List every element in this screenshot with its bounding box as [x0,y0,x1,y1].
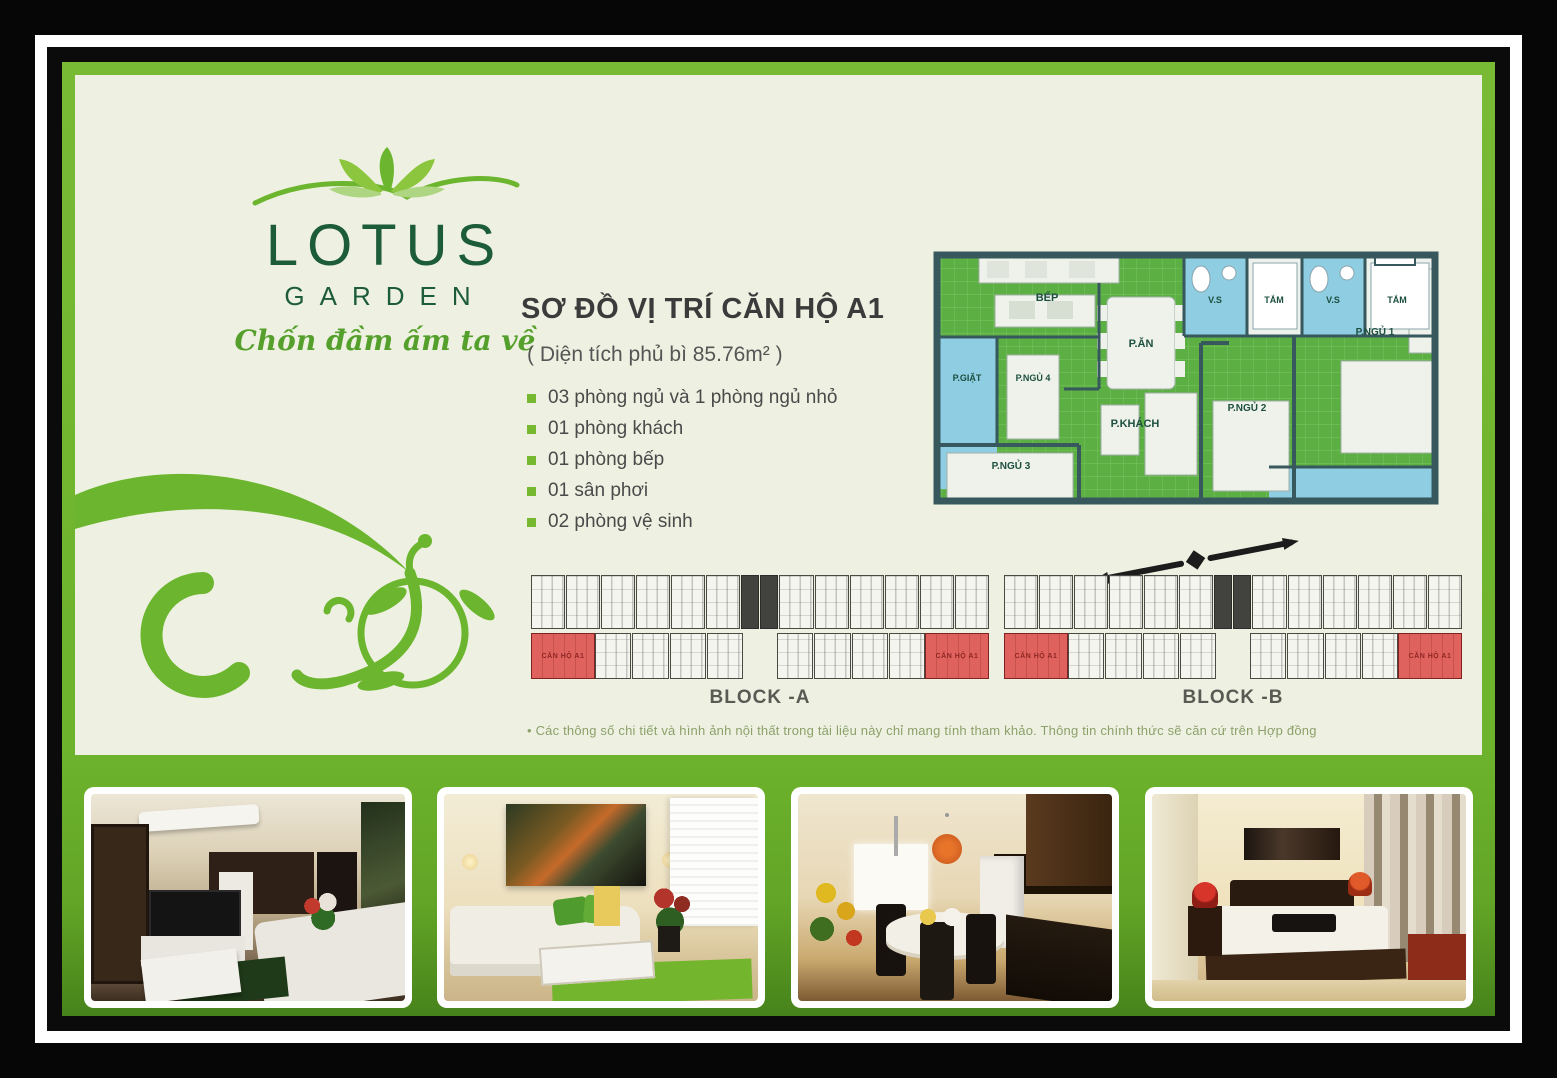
apartment-unit-cell [670,633,706,679]
feature-item: 01 phòng khách [527,418,838,440]
apartment-unit-cell [595,633,631,679]
unit-highlight-a1: CĂN HỘ A1 [1398,633,1462,679]
apartment-unit-cell [1039,575,1073,629]
feature-text: 01 phòng bếp [548,449,664,471]
feature-item: 02 phòng vệ sinh [527,511,838,533]
unit-highlight-a1: CĂN HỘ A1 [925,633,989,679]
apartment-unit-cell [815,575,849,629]
elevator-core-cell [1233,575,1251,629]
photo-bedroom [1145,787,1473,1008]
square-bullet-icon [527,425,536,434]
block-a-cells-right [777,633,925,679]
room-label-wc2: V.S [1326,295,1340,305]
apartment-unit-cell [1362,633,1398,679]
room-label-living: P.KHÁCH [1111,417,1160,430]
apartment-unit-cell [1428,575,1462,629]
disclaimer-text: • Các thông số chi tiết và hình ảnh nội … [527,723,1467,738]
unit-highlight-a1: CĂN HỘ A1 [1004,633,1068,679]
photo-living-room-tv [84,787,412,1008]
photo-bedroom-image [1152,794,1466,1001]
apartment-unit-cell [955,575,989,629]
feature-text: 01 phòng khách [548,418,683,440]
block-gap [1216,633,1250,679]
block-b-cells-left [1068,633,1216,679]
apartment-unit-cell [636,575,670,629]
photo-sofa-room-image [444,794,758,1001]
feature-text: 01 sân phơi [548,480,648,502]
content-panel: LOTUS GARDEN Chốn đầm ấm ta về SƠ ĐỒ VỊ … [75,75,1482,755]
photo-kitchen-dining [791,787,1119,1008]
decorative-swirl [75,465,505,735]
apartment-unit-cell [1074,575,1108,629]
brand-name: LOTUS [185,217,585,275]
pendant-cord [894,816,898,856]
block-a-cells-left [595,633,743,679]
brand-tagline: Chốn đầm ấm ta về [185,324,585,357]
feature-text: 02 phòng vệ sinh [548,511,693,533]
nightstand [1188,906,1222,956]
apartment-floor-plan: BẾP P.ĂN P.GIẶT P.NGỦ 4 P.KHÁCH P.NGỦ 3 … [929,243,1444,518]
square-bullet-icon [527,394,536,403]
block-a-diagram: CĂN HỘ A1 CĂN HỘ A1 BLOCK -A [531,575,989,709]
apartment-unit-cell [1358,575,1392,629]
apartment-unit-cell [885,575,919,629]
upper-cabinets [1026,794,1112,886]
feature-text: 03 phòng ngủ và 1 phòng ngủ nhỏ [548,387,838,409]
block-b-cells-right [1250,633,1398,679]
apartment-unit-cell [779,575,813,629]
red-lamp [1192,882,1218,908]
red-lamp [1348,872,1372,896]
room-label-dining: P.ĂN [1129,337,1154,350]
room-label-bedroom1: P.NGỦ 1 [1356,325,1395,338]
elevator-core-cell [1214,575,1232,629]
apartment-unit-cell [1250,633,1286,679]
apartment-unit-cell [920,575,954,629]
orange-pendant-lamp [932,834,962,864]
wall-art [506,804,646,886]
apartment-unit-cell [1105,633,1141,679]
block-a-top-row [531,575,989,629]
bed-tray [1272,914,1336,932]
apartment-title: SƠ ĐỒ VỊ TRÍ CĂN HỘ A1 [521,293,884,326]
block-b-diagram: CĂN HỘ A1 CĂN HỘ A1 BLOCK -B [1004,575,1462,709]
apartment-unit-cell [706,575,740,629]
apartment-unit-cell [707,633,743,679]
feature-item: 03 phòng ngủ và 1 phòng ngủ nhỏ [527,387,838,409]
air-conditioner [138,804,259,832]
photo-living-room-tv-image [91,794,405,1001]
elevator-core-cell [741,575,759,629]
square-bullet-icon [527,487,536,496]
room-label-bedroom4: P.NGỦ 4 [1016,372,1051,383]
apartment-unit-cell [889,633,925,679]
dining-chair [920,922,954,1000]
room-label-bath1: TẮM [1264,295,1284,305]
block-gap [743,633,777,679]
apartment-unit-cell [1180,633,1216,679]
apartment-unit-cell [566,575,600,629]
room-label-bath2: TẮM [1387,295,1407,305]
photo-kitchen-dining-image [798,794,1112,1001]
lotus-flower-icon [235,145,535,217]
room-label-laundry: P.GIẶT [953,373,982,383]
apartment-unit-cell [601,575,635,629]
plant-pot [658,926,680,952]
elevator-core-cell [760,575,778,629]
kitchen-counter [1006,915,1112,1001]
apartment-unit-cell [814,633,850,679]
block-b-label: BLOCK -B [1004,687,1462,709]
yellow-flowers [798,866,878,956]
room-label-wc1: V.S [1208,295,1222,305]
apartment-unit-cell [1068,633,1104,679]
feature-item: 01 sân phơi [527,480,838,502]
apartment-unit-cell [1393,575,1427,629]
square-bullet-icon [527,456,536,465]
apartment-unit-cell [671,575,705,629]
room-label-bedroom2: P.NGỦ 2 [1228,401,1267,414]
floor [1152,980,1466,1001]
apartment-unit-cell [852,633,888,679]
block-b-top-row [1004,575,1462,629]
coffee-table [539,940,655,986]
feature-item: 01 phòng bếp [527,449,838,471]
table-setting [910,906,970,928]
apartment-unit-cell [1109,575,1143,629]
apartment-unit-cell [1143,633,1179,679]
apartment-unit-cell [777,633,813,679]
photo-sofa-room [437,787,765,1008]
flower-bouquet [299,890,343,930]
tv-screen [149,890,241,938]
apartment-unit-cell [850,575,884,629]
apartment-unit-cell [1323,575,1357,629]
square-bullet-icon [527,518,536,527]
block-b-bottom-row: CĂN HỘ A1 CĂN HỘ A1 [1004,633,1462,679]
apartment-unit-cell [1144,575,1178,629]
wall-lamp [462,854,478,870]
block-a-label: BLOCK -A [531,687,989,709]
wall-art [1244,828,1340,860]
feature-list: 03 phòng ngủ và 1 phòng ngủ nhỏ 01 phòng… [527,387,838,542]
green-background: LOTUS GARDEN Chốn đầm ấm ta về SƠ ĐỒ VỊ … [62,62,1495,1016]
dining-chair [966,914,996,984]
apartment-unit-cell [1004,575,1038,629]
apartment-unit-cell [632,633,668,679]
apartment-unit-cell [531,575,565,629]
apartment-unit-cell [1287,633,1323,679]
unit-highlight-a1: CĂN HỘ A1 [531,633,595,679]
room-label-kitchen: BẾP [1036,291,1059,304]
floor-lamp [594,886,620,926]
apartment-unit-cell [1325,633,1361,679]
apartment-unit-cell [1252,575,1286,629]
room-label-bedroom3: P.NGỦ 3 [992,459,1031,472]
apartment-unit-cell [1179,575,1213,629]
apartment-unit-cell [1288,575,1322,629]
apartment-area-note: ( Diện tích phủ bì 85.76m² ) [527,343,783,367]
block-a-bottom-row: CĂN HỘ A1 CĂN HỘ A1 [531,633,989,679]
